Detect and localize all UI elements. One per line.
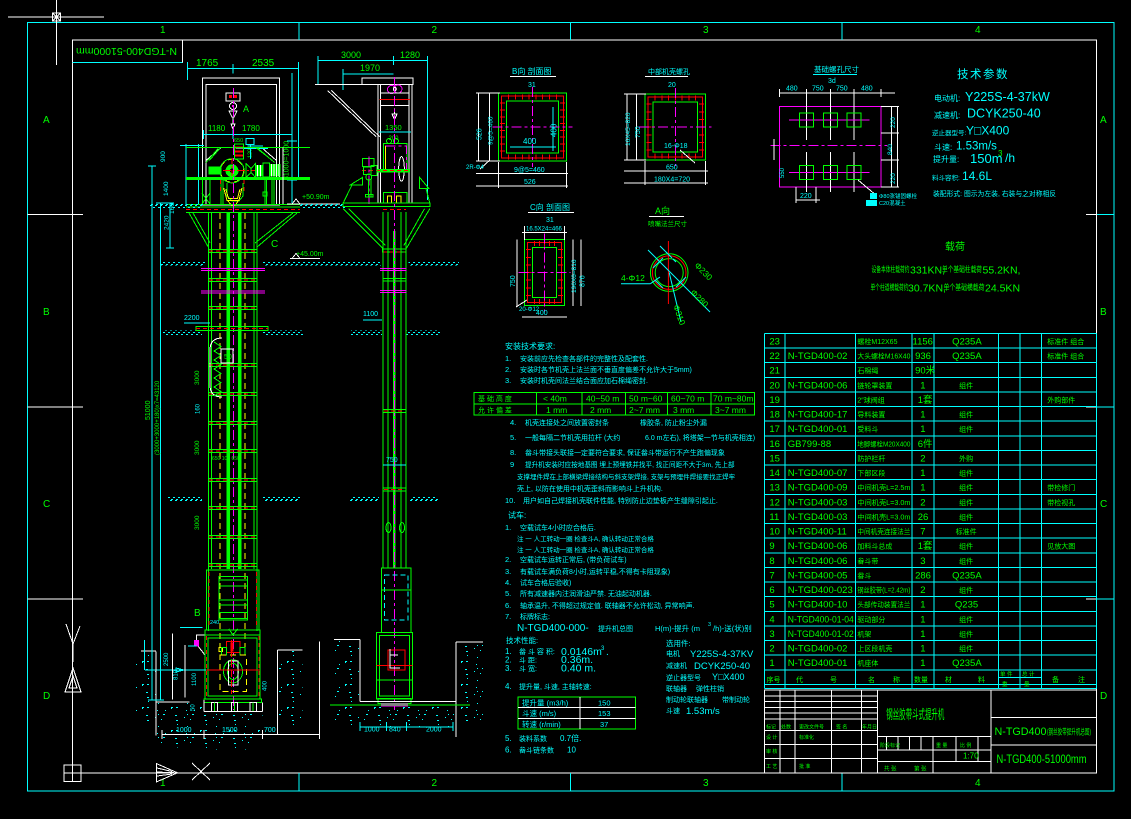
svg-text:2″球阀组: 2″球阀组: [857, 395, 884, 404]
svg-text:160: 160: [196, 403, 202, 414]
svg-text:37: 37: [600, 720, 608, 729]
svg-text:中间机壳连接法兰: 中间机壳连接法兰: [857, 527, 910, 536]
svg-text:组件: 组件: [959, 629, 973, 638]
svg-text:2: 2: [432, 778, 438, 789]
svg-text:试车:: 试车:: [508, 510, 526, 520]
svg-text:700: 700: [264, 727, 276, 734]
svg-text:上区段机壳: 上区段机壳: [857, 644, 892, 653]
svg-text:1: 1: [920, 600, 925, 611]
svg-text:代: 代: [796, 675, 803, 684]
svg-text:240: 240: [210, 620, 219, 626]
svg-text:12: 12: [769, 497, 780, 508]
svg-text:A: A: [43, 115, 50, 126]
svg-text:加料斗总成: 加料斗总成: [857, 542, 892, 551]
svg-text:2.: 2.: [505, 365, 511, 374]
svg-text:注: 注: [1078, 675, 1085, 684]
svg-text:联轴器: 联轴器: [666, 684, 687, 693]
svg-text:4.: 4.: [505, 682, 512, 691]
svg-text:31000=1000: 31000=1000: [284, 141, 291, 180]
svg-text:1780: 1780: [242, 124, 260, 133]
svg-text:Φ80涨锚固螺栓: Φ80涨锚固螺栓: [879, 192, 918, 200]
svg-text:提升量 (m3/h): 提升量 (m3/h): [522, 698, 569, 708]
svg-text:160: 160: [169, 203, 176, 214]
svg-text:共 张: 共 张: [884, 765, 897, 773]
svg-text:审 核: 审 核: [766, 748, 777, 755]
svg-text:1套: 1套: [918, 540, 933, 552]
svg-text:N-TGD400-10: N-TGD400-10: [788, 600, 848, 611]
svg-text:组件: 组件: [959, 483, 973, 492]
svg-text:畚斗: 畚斗: [857, 571, 871, 580]
svg-text:D: D: [43, 691, 50, 702]
svg-text:2200: 2200: [184, 315, 200, 322]
svg-text:20: 20: [668, 82, 676, 89]
svg-text:中部机壳螺孔: 中部机壳螺孔: [648, 67, 690, 76]
svg-text:60~70 m: 60~70 m: [671, 394, 704, 404]
svg-text:/h)-送(状)别: /h)-送(状)别: [713, 623, 752, 633]
svg-text:机座体: 机座体: [857, 659, 878, 668]
svg-text:N-TGD400-01-02: N-TGD400-01-02: [788, 629, 854, 640]
svg-text:2: 2: [920, 585, 925, 596]
svg-text:1.53m/s: 1.53m/s: [686, 706, 720, 717]
svg-text:3: 3: [703, 25, 709, 36]
svg-text:840: 840: [389, 727, 401, 734]
svg-text:设备本体柱载荷约: 设备本体柱载荷约: [872, 264, 910, 274]
svg-text:一般每隔二节机壳用拉杆 (大约: 一般每隔二节机壳用拉杆 (大约: [525, 433, 620, 442]
svg-text:地脚螺栓M20X400: 地脚螺栓M20X400: [857, 439, 910, 448]
svg-text:减速机: 减速机: [666, 661, 687, 670]
svg-text:带制动轮: 带制动轮: [722, 695, 750, 704]
svg-text:空载试车4小时应合格后.: 空载试车4小时应合格后.: [520, 523, 596, 532]
svg-text:允 许 偏 差: 允 许 偏 差: [478, 406, 512, 415]
svg-text:3000: 3000: [194, 440, 201, 455]
svg-text:286: 286: [915, 570, 931, 581]
svg-text:A: A: [243, 104, 249, 114]
svg-text:1: 1: [920, 410, 925, 421]
svg-text:7: 7: [769, 570, 774, 581]
svg-text:5.: 5.: [505, 589, 511, 598]
svg-text:2: 2: [432, 25, 438, 36]
svg-text:10.: 10.: [505, 496, 515, 505]
svg-text:中间机壳L=2.5m: 中间机壳L=2.5m: [857, 483, 910, 492]
svg-text:处数: 处数: [781, 724, 791, 731]
svg-text:Y225S-4-37kW: Y225S-4-37kW: [965, 90, 1050, 104]
svg-text:750: 750: [812, 86, 824, 93]
svg-text:10: 10: [567, 746, 576, 755]
svg-text:331KN,: 331KN,: [910, 265, 945, 277]
svg-text:用户如自己焊接机壳联件性能, 特别防止边垫板产生缝隙引起止.: 用户如自己焊接机壳联件性能, 特别防止边垫板产生缝隙引起止.: [523, 496, 718, 505]
svg-text:钢丝胶带(L=2.42m): 钢丝胶带(L=2.42m): [857, 586, 910, 595]
svg-text:1: 1: [920, 380, 925, 391]
svg-text:1套: 1套: [918, 394, 933, 406]
svg-text:900: 900: [160, 151, 167, 162]
svg-text:750: 750: [386, 457, 398, 464]
svg-text:畚斗链条数: 畚斗链条数: [519, 746, 554, 755]
svg-text:N-TGD400-03: N-TGD400-03: [788, 497, 848, 508]
svg-text:50: 50: [191, 704, 197, 711]
svg-text:8.: 8.: [510, 448, 516, 457]
svg-text:试车合格后验收): 试车合格后验收): [520, 578, 571, 587]
svg-text:螺栓M12X65: 螺栓M12X65: [857, 337, 897, 346]
svg-text:13: 13: [769, 483, 780, 494]
svg-text:(3000+3000+180)x7=43120: (3000+3000+180)x7=43120: [155, 380, 161, 455]
svg-text:逆止器型号: 逆止器型号: [666, 673, 701, 682]
svg-text:16: 16: [769, 439, 780, 450]
svg-text:外购: 外购: [959, 454, 973, 463]
svg-text:1350: 1350: [385, 123, 402, 132]
svg-text:/h: /h: [1005, 151, 1015, 165]
svg-text:B: B: [1100, 307, 1107, 318]
svg-text:技术参数: 技术参数: [957, 67, 1009, 81]
svg-text:Q235: Q235: [955, 600, 978, 611]
svg-text:3.: 3.: [505, 376, 511, 385]
svg-text:转速 (r/min): 转速 (r/min): [522, 719, 561, 729]
svg-text:20: 20: [769, 380, 780, 391]
svg-text:2: 2: [769, 644, 774, 655]
svg-text:7: 7: [920, 527, 925, 538]
svg-text:阶段标记: 阶段标记: [880, 742, 900, 749]
svg-text:电动机:: 电动机:: [934, 93, 960, 103]
svg-text:年月日: 年月日: [862, 724, 877, 731]
svg-text:Y□X400: Y□X400: [966, 124, 1010, 138]
svg-text:1970: 1970: [360, 63, 380, 73]
svg-text:3: 3: [703, 778, 709, 789]
svg-text:Q235A: Q235A: [952, 570, 982, 581]
svg-text:轴承温升, 不得超过规定值. 联轴器不允许松动, 异常响声.: 轴承温升, 不得超过规定值. 联轴器不允许松动, 异常响声.: [520, 601, 695, 610]
svg-text:组件: 组件: [959, 586, 973, 595]
svg-text:第 张: 第 张: [914, 765, 927, 773]
svg-text:N-TGD400-06: N-TGD400-06: [788, 380, 848, 391]
svg-text:3000: 3000: [194, 370, 201, 385]
svg-text:750: 750: [510, 275, 517, 287]
svg-text:注 一 人工转动一圈 检查斗A, 确认转动正常合格: 注 一 人工转动一圈 检查斗A, 确认转动正常合格: [517, 534, 654, 543]
svg-text:A: A: [1100, 115, 1107, 126]
svg-text:工 艺: 工 艺: [766, 764, 777, 770]
svg-text:9: 9: [769, 541, 774, 552]
svg-text:16.5X24=466: 16.5X24=466: [526, 227, 563, 233]
svg-text:180X4=720: 180X4=720: [654, 177, 690, 184]
svg-text:中间机壳L=3.0m: 中间机壳L=3.0m: [857, 512, 910, 521]
svg-text:标准化: 标准化: [799, 734, 814, 741]
svg-text:安装时各节机壳上法兰面不垂直度偏差不允许大于5mm): 安装时各节机壳上法兰面不垂直度偏差不允许大于5mm): [520, 365, 692, 374]
svg-text:1000: 1000: [364, 727, 380, 734]
svg-text:提升机总图: 提升机总图: [598, 624, 633, 633]
svg-text:2~7 mm: 2~7 mm: [629, 405, 660, 415]
svg-text:550: 550: [780, 167, 786, 178]
svg-text:N-TGD400-51000mm: N-TGD400-51000mm: [76, 45, 177, 57]
svg-text:4.: 4.: [505, 578, 511, 587]
svg-text:3.: 3.: [505, 664, 512, 673]
svg-text:选用件:: 选用件:: [666, 638, 691, 648]
svg-text:见放大图: 见放大图: [1047, 542, 1075, 551]
svg-text:14.6L: 14.6L: [962, 169, 992, 183]
svg-text:钢丝胶带斗式提升机: 钢丝胶带斗式提升机: [886, 707, 944, 722]
svg-text:头部传动装置法兰: 头部传动装置法兰: [857, 600, 910, 609]
svg-text:壳上, 以防在使用中机壳歪斜而影响斗上升机构.: 壳上, 以防在使用中机壳歪斜而影响斗上升机构.: [517, 484, 663, 493]
svg-text:1: 1: [160, 25, 166, 36]
svg-text:400: 400: [550, 123, 559, 137]
svg-text:N-TGD400-01: N-TGD400-01: [788, 658, 848, 669]
svg-text:31: 31: [528, 82, 536, 89]
svg-text:1: 1: [920, 483, 925, 494]
svg-text:17: 17: [769, 424, 780, 435]
svg-text:.: .: [606, 647, 609, 658]
svg-text:1: 1: [920, 644, 925, 655]
svg-text:N-TGD400-01-04: N-TGD400-01-04: [788, 614, 854, 625]
svg-text:840: 840: [887, 144, 894, 155]
svg-text:3 mm: 3 mm: [673, 405, 694, 415]
svg-text:5.: 5.: [510, 433, 516, 442]
svg-text:A向: A向: [655, 205, 670, 216]
svg-text:Y□X400: Y□X400: [712, 672, 744, 682]
svg-text:支撑埋件焊在上部横梁焊接结构与斜支架焊接, 支架与预埋件焊接: 支撑埋件焊在上部横梁焊接结构与斜支架焊接, 支架与预埋件焊接要找正焊牢: [517, 472, 736, 481]
svg-text:大头螺栓M16X40: 大头螺栓M16X40: [857, 352, 910, 361]
svg-text:9@5=460: 9@5=460: [487, 116, 494, 145]
svg-text:810: 810: [174, 669, 180, 680]
svg-text:装配形式: 图示为左装, 右装与之对称相反: 装配形式: 图示为左装, 右装与之对称相反: [933, 189, 1056, 198]
svg-text:51000: 51000: [145, 400, 152, 420]
svg-text:畚斗带: 畚斗带: [857, 556, 878, 565]
svg-text:链轮罩装置: 链轮罩装置: [857, 381, 892, 390]
svg-text:B: B: [194, 608, 201, 619]
svg-text:组件: 组件: [959, 498, 973, 507]
svg-text:2.: 2.: [505, 555, 511, 564]
svg-text:3: 3: [920, 556, 925, 567]
svg-text:GB799-88: GB799-88: [788, 439, 831, 450]
svg-text:斗速 (m/s): 斗速 (m/s): [522, 709, 557, 718]
svg-text:(钢丝胶带提升机总图): (钢丝胶带提升机总图): [1047, 727, 1091, 737]
svg-text:装料系数: 装料系数: [519, 734, 547, 743]
svg-text:机壳连接处之间放置密封条: 机壳连接处之间放置密封条: [525, 418, 609, 427]
svg-text:C: C: [271, 239, 278, 250]
svg-text:3000: 3000: [341, 50, 361, 60]
svg-text:橡胶条, 防止粉尘外漏: 橡胶条, 防止粉尘外漏: [640, 418, 707, 427]
svg-text:N-TGD400: N-TGD400: [995, 726, 1047, 738]
svg-text:组件: 组件: [959, 542, 973, 551]
svg-text:1000: 1000: [176, 727, 192, 734]
svg-text:Q235A: Q235A: [952, 351, 982, 362]
svg-text:外购部件: 外购部件: [1047, 395, 1075, 404]
svg-text:标记: 标记: [766, 724, 776, 731]
svg-text:1500: 1500: [222, 727, 238, 734]
svg-text:1 mm: 1 mm: [546, 405, 567, 415]
svg-text:畚斗带接头联接一定要符合要求, 保证畚斗带运行不产生跑偏现象: 畚斗带接头联接一定要符合要求, 保证畚斗带运行不产生跑偏现象: [525, 448, 725, 457]
svg-text:4.: 4.: [510, 418, 516, 427]
svg-text:组件: 组件: [959, 381, 973, 390]
svg-text:18: 18: [769, 410, 780, 421]
svg-text:单 件: 单 件: [1000, 670, 1013, 678]
svg-text:Q235A: Q235A: [952, 336, 982, 347]
svg-text:9: 9: [510, 460, 514, 469]
svg-text:料斗容积:: 料斗容积:: [932, 173, 960, 182]
svg-text:DCYK250-40: DCYK250-40: [967, 107, 1041, 121]
svg-text:号: 号: [830, 676, 837, 684]
svg-text:N-TGD400-01: N-TGD400-01: [788, 424, 848, 435]
svg-text:提升量, 斗速, 主轴转速:: 提升量, 斗速, 主轴转速:: [519, 682, 592, 691]
svg-text:B向 剖面图: B向 剖面图: [512, 66, 552, 76]
svg-text:526: 526: [524, 179, 536, 186]
svg-text:中间机壳L=3.0m: 中间机壳L=3.0m: [857, 498, 910, 507]
svg-text:2 mm: 2 mm: [590, 405, 611, 415]
svg-text:2: 2: [920, 497, 925, 508]
svg-text:技术性能:: 技术性能:: [506, 635, 538, 645]
svg-text:安装时机壳间法兰结合面应加石棉绳密封.: 安装时机壳间法兰结合面应加石棉绳密封.: [520, 376, 648, 385]
svg-text:N-TGD400-11: N-TGD400-11: [788, 527, 847, 538]
svg-text:2420: 2420: [164, 215, 171, 230]
svg-text:N-TGD400-07: N-TGD400-07: [788, 468, 848, 479]
svg-text:196X6=816: 196X6=816: [571, 259, 578, 293]
svg-text:数量: 数量: [914, 675, 928, 684]
svg-text:11: 11: [769, 512, 779, 523]
svg-text:5.: 5.: [505, 734, 512, 743]
svg-text:标准件 组合: 标准件 组合: [1047, 352, 1084, 361]
svg-text:下部区段: 下部区段: [857, 469, 885, 478]
svg-text:Q235A: Q235A: [952, 658, 982, 669]
svg-text:组件: 组件: [959, 556, 973, 565]
svg-text:制动轮联轴器: 制动轮联轴器: [666, 695, 708, 704]
svg-text:单个基础柱载荷: 单个基础柱载荷: [942, 264, 982, 274]
svg-text:名: 名: [868, 675, 875, 684]
svg-text:24.5KN: 24.5KN: [985, 283, 1020, 295]
svg-text:1180: 1180: [208, 124, 226, 133]
svg-text:750: 750: [635, 126, 642, 138]
svg-text:9@5=460: 9@5=460: [514, 167, 545, 174]
svg-text:+45.00m: +45.00m: [296, 251, 324, 258]
svg-text:90米: 90米: [915, 365, 936, 377]
svg-text:4-Φ12: 4-Φ12: [621, 273, 645, 283]
svg-text:650 100 650: 650 100 650: [212, 456, 240, 462]
svg-text:1:70: 1:70: [963, 752, 979, 761]
svg-text:序号: 序号: [767, 675, 781, 684]
svg-text:5: 5: [769, 600, 774, 611]
svg-text:220: 220: [890, 117, 897, 128]
svg-text:50: 50: [224, 354, 232, 361]
svg-text:1.: 1.: [505, 523, 511, 532]
svg-text:150: 150: [598, 699, 611, 708]
svg-text:16-Φ18: 16-Φ18: [664, 143, 688, 150]
svg-text:50 m~60: 50 m~60: [629, 394, 663, 404]
svg-text:逆止器型号:: 逆止器型号:: [932, 128, 967, 137]
svg-text:N-TGD400-09: N-TGD400-09: [788, 483, 848, 494]
svg-text:注 一 人工转动一圈 检查斗A, 确认转动正常合格: 注 一 人工转动一圈 检查斗A, 确认转动正常合格: [517, 545, 654, 554]
svg-text:3000: 3000: [194, 515, 201, 530]
svg-text:单个柱道横载荷约: 单个柱道横载荷约: [871, 282, 909, 292]
svg-text:畚 斗 容 积:: 畚 斗 容 积:: [519, 647, 555, 656]
svg-text:526: 526: [477, 128, 484, 140]
svg-text:机架: 机架: [857, 629, 871, 638]
svg-text:N-TGD400-05: N-TGD400-05: [788, 570, 848, 581]
svg-text:1.: 1.: [505, 354, 511, 363]
svg-text:C: C: [1100, 499, 1107, 510]
svg-text:设 计: 设 计: [766, 734, 777, 741]
svg-text:N-TGD400-03: N-TGD400-03: [788, 512, 848, 523]
svg-text:15: 15: [769, 453, 780, 464]
svg-text:1400: 1400: [163, 181, 170, 196]
svg-text:H(m)-提升 (m: H(m)-提升 (m: [655, 623, 700, 633]
svg-text:2535: 2535: [252, 58, 275, 69]
svg-text:组件: 组件: [959, 644, 973, 653]
svg-text:6: 6: [769, 585, 774, 596]
svg-text:40~50 m: 40~50 m: [586, 394, 619, 404]
svg-text:4: 4: [975, 25, 981, 36]
svg-text:有载试车满负荷8小时,运转平稳,不得有卡阻现象): 有载试车满负荷8小时,运转平稳,不得有卡阻现象): [520, 567, 670, 576]
svg-text:30.7KN,: 30.7KN,: [908, 283, 946, 295]
svg-text:组件: 组件: [959, 469, 973, 478]
svg-text:1: 1: [920, 424, 925, 435]
svg-text:喷嘴法兰尺寸: 喷嘴法兰尺寸: [648, 219, 688, 228]
svg-text:7.: 7.: [505, 612, 511, 621]
svg-text:标准件 组合: 标准件 组合: [1047, 337, 1084, 346]
svg-text:2000: 2000: [426, 727, 442, 734]
svg-text:1: 1: [920, 658, 925, 669]
svg-text:C向 剖面图: C向 剖面图: [530, 202, 570, 212]
svg-text:石棉绳: 石棉绳: [857, 366, 878, 375]
svg-text:导料装置: 导料装置: [857, 410, 885, 419]
svg-text:比 例: 比 例: [960, 742, 971, 749]
svg-text:6.: 6.: [505, 601, 511, 610]
svg-text:总 计: 总 计: [1022, 670, 1035, 678]
svg-text:55.2KN,: 55.2KN,: [983, 265, 1021, 277]
svg-text:提升机安装时应按地基图 埋上预埋铁并找平, 找正间距不大于3: 提升机安装时应按地基图 埋上预埋铁并找平, 找正间距不大于3m, 先上部: [525, 460, 735, 469]
svg-text:1: 1: [920, 629, 925, 640]
svg-text:6.: 6.: [505, 746, 512, 755]
svg-text:斗 宽:: 斗 宽:: [519, 664, 537, 673]
svg-text:更改文件号: 更改文件号: [799, 724, 824, 731]
svg-text:1: 1: [920, 468, 925, 479]
svg-text:所有减速器内注润滑油严禁. 无油起动机器.: 所有减速器内注润滑油严禁. 无油起动机器.: [520, 589, 652, 598]
svg-text:标牌标志:: 标牌标志:: [520, 612, 550, 621]
svg-text:DCYK250-40: DCYK250-40: [694, 661, 750, 672]
svg-text:2R-Φ4: 2R-Φ4: [466, 165, 484, 171]
svg-text:4: 4: [975, 778, 981, 789]
svg-text:N-TGD400-06: N-TGD400-06: [788, 541, 848, 552]
svg-text:16X45=820: 16X45=820: [625, 112, 632, 146]
svg-text:23: 23: [769, 336, 780, 347]
svg-text:带检视孔: 带检视孔: [1047, 498, 1075, 507]
svg-text:Y225S-4-37KV: Y225S-4-37KV: [690, 649, 754, 660]
svg-text:20-Φ12: 20-Φ12: [519, 307, 540, 313]
svg-text:21: 21: [769, 366, 780, 377]
svg-text:3.: 3.: [505, 567, 511, 576]
svg-text:0.40 m.: 0.40 m.: [561, 663, 596, 675]
svg-text:N-TGD400-02: N-TGD400-02: [788, 351, 848, 362]
svg-text:0.7倍.: 0.7倍.: [560, 733, 581, 743]
svg-text:N-TGD400-000-: N-TGD400-000-: [517, 623, 589, 634]
svg-text:单个基础横载荷: 单个基础横载荷: [944, 282, 985, 292]
svg-text:电机: 电机: [666, 649, 680, 658]
svg-text:受料斗: 受料斗: [857, 425, 878, 434]
svg-text:480: 480: [786, 86, 798, 93]
svg-text:带检修门: 带检修门: [1047, 483, 1075, 492]
svg-text:2: 2: [920, 453, 925, 464]
svg-text:组件: 组件: [959, 410, 973, 419]
svg-text:480: 480: [861, 86, 873, 93]
svg-text:重: 重: [1002, 680, 1008, 688]
svg-text:N-TGD400-51000mm: N-TGD400-51000mm: [997, 754, 1087, 766]
svg-text:驱动部分: 驱动部分: [857, 615, 885, 624]
svg-text:组件: 组件: [959, 615, 973, 624]
svg-text:220: 220: [800, 193, 812, 200]
svg-text:1156: 1156: [913, 336, 933, 347]
svg-text:19: 19: [769, 395, 780, 406]
svg-text:1280: 1280: [400, 50, 420, 60]
svg-text:1100: 1100: [192, 672, 198, 686]
svg-text:3d: 3d: [828, 78, 836, 85]
svg-text:称: 称: [893, 675, 900, 684]
svg-text:26: 26: [918, 512, 929, 523]
svg-text:936: 936: [915, 351, 931, 362]
svg-text:N-TGD400-17: N-TGD400-17: [788, 410, 848, 421]
svg-text:组件: 组件: [959, 425, 973, 434]
